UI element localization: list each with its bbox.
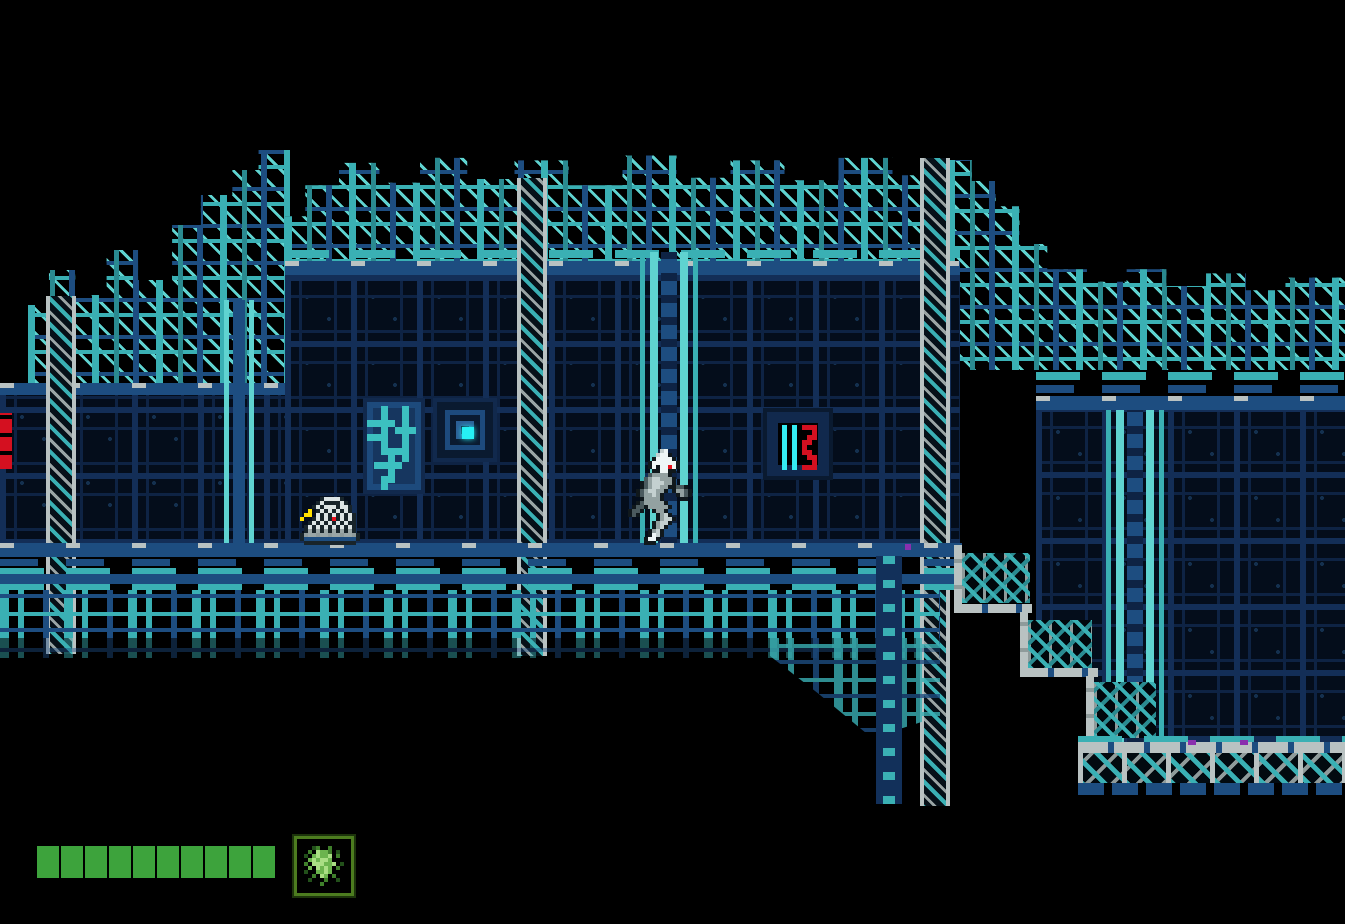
under-floor-diagonal-patch (770, 638, 940, 738)
sprite-pixel-run (381, 448, 409, 455)
sprite-pixel-run (381, 413, 388, 420)
sprite-pixel-run (388, 455, 395, 462)
step-lattice-3 (1094, 682, 1156, 738)
sprite-pixel-run (356, 537, 360, 541)
pipes-art (353, 406, 437, 490)
status-screen (778, 423, 818, 465)
bridge-rail (1078, 742, 1345, 753)
sprite-pixel-run (802, 465, 817, 470)
status-readout-art (782, 425, 822, 470)
health-segment (61, 846, 83, 878)
sprite-pixel-run (324, 878, 328, 882)
sprite-pixel-run (792, 465, 797, 470)
sprite-pixel-run (336, 854, 340, 858)
turret-enemy (300, 497, 364, 545)
health-segment (37, 846, 59, 878)
pipe-conduit-panel (363, 398, 425, 494)
step-lattice-1 (962, 553, 1030, 603)
sprite-pixel-run (374, 462, 402, 469)
sprite-pixel-run (308, 866, 312, 870)
purple-indicator-dot (1240, 740, 1248, 745)
step-edge-3 (1086, 676, 1094, 740)
sprite-pixel-run (660, 533, 664, 537)
sprite-pixel-run (395, 427, 416, 434)
step-lattice-2 (1028, 620, 1092, 668)
bridge-bottom-band (1078, 783, 1345, 795)
health-bar (37, 846, 275, 878)
health-segment (157, 846, 179, 878)
sprite-pixel-run (402, 413, 409, 420)
sprite-pixel-run (680, 497, 688, 501)
sprite-pixel-run (304, 870, 308, 874)
orb-cyan-light (462, 427, 474, 439)
canopy-fringe-right (948, 160, 1345, 370)
sprite-pixel-run (402, 455, 409, 462)
health-segment (229, 846, 251, 878)
sprite-pixel-run (402, 441, 409, 448)
sprite-pixel-run (381, 441, 388, 448)
sprite-pixel-run (367, 420, 395, 427)
health-segment (85, 846, 107, 878)
hanging-ladder-column (876, 556, 902, 804)
player-character (628, 449, 700, 545)
sprite-pixel-run (308, 878, 312, 882)
orb-light-panel (433, 398, 497, 462)
wall-top-teal-dashes (285, 250, 960, 258)
game-screen[interactable] (0, 0, 1345, 924)
sprite-pixel-run (336, 866, 340, 870)
sprite-pixel-run (640, 509, 644, 513)
stripe (1159, 410, 1164, 742)
sprite-pixel-run (672, 517, 676, 521)
sprite-pixel-run (636, 513, 640, 517)
purple-indicator-dot (905, 544, 911, 550)
bridge-truss (1078, 753, 1345, 783)
sprite-pixel-run (664, 525, 668, 529)
sprite-pixel-run (402, 420, 409, 427)
health-segment (253, 846, 275, 878)
right-wall-navy-dashes (1036, 385, 1345, 393)
item-icon (300, 842, 348, 890)
floor-navy-band (0, 574, 962, 584)
sprite-pixel-run (304, 541, 356, 545)
sprite-pixel-run (656, 537, 660, 541)
wall-top-edge-band (285, 261, 960, 275)
sprite-pixel-run (668, 521, 672, 525)
sprite-pixel-run (300, 517, 304, 521)
sprite-pixel-run (336, 878, 340, 882)
purple-indicator-dot (1188, 740, 1196, 745)
sprite-pixel-run (320, 882, 324, 886)
sprite-pixel-run (388, 469, 395, 476)
sprite-pixel-run (402, 434, 409, 441)
sprite-pixel-run (688, 493, 692, 497)
floor-navy-dashes (0, 559, 962, 566)
sprite-pixel-run (782, 465, 787, 470)
step-edge-2 (1020, 612, 1028, 674)
sprite-pixel-run (402, 406, 409, 413)
sprite-pixel-run (304, 513, 312, 517)
sprite-pixel-run (312, 874, 316, 878)
sprite-pixel-run (381, 427, 388, 434)
health-segment (109, 846, 131, 878)
sprite-pixel-run (676, 465, 680, 469)
right-wall-edge-band (1036, 396, 1345, 410)
floor-top-edge (0, 543, 962, 557)
steps-cutout (1036, 677, 1092, 742)
step-edge-1 (954, 545, 962, 611)
left-edge-red-panel (0, 413, 12, 469)
health-segment (133, 846, 155, 878)
right-wall-teal-dashes (1036, 372, 1345, 380)
sprite-pixel-run (664, 489, 668, 493)
under-floor-machinery (0, 590, 940, 638)
sprite-pixel-run (381, 483, 388, 490)
sprite-pixel-run (381, 406, 388, 413)
health-segment (205, 846, 227, 878)
item-slot (294, 836, 354, 896)
sprite-pixel-run (381, 476, 395, 483)
sprite-pixel-run (668, 505, 672, 509)
status-screen-panel (763, 408, 833, 480)
sprite-pixel-run (644, 541, 656, 545)
left-light-stripe-column (224, 300, 254, 545)
sprite-pixel-run (340, 862, 344, 866)
health-segment (181, 846, 203, 878)
sprite-pixel-run (367, 434, 388, 441)
